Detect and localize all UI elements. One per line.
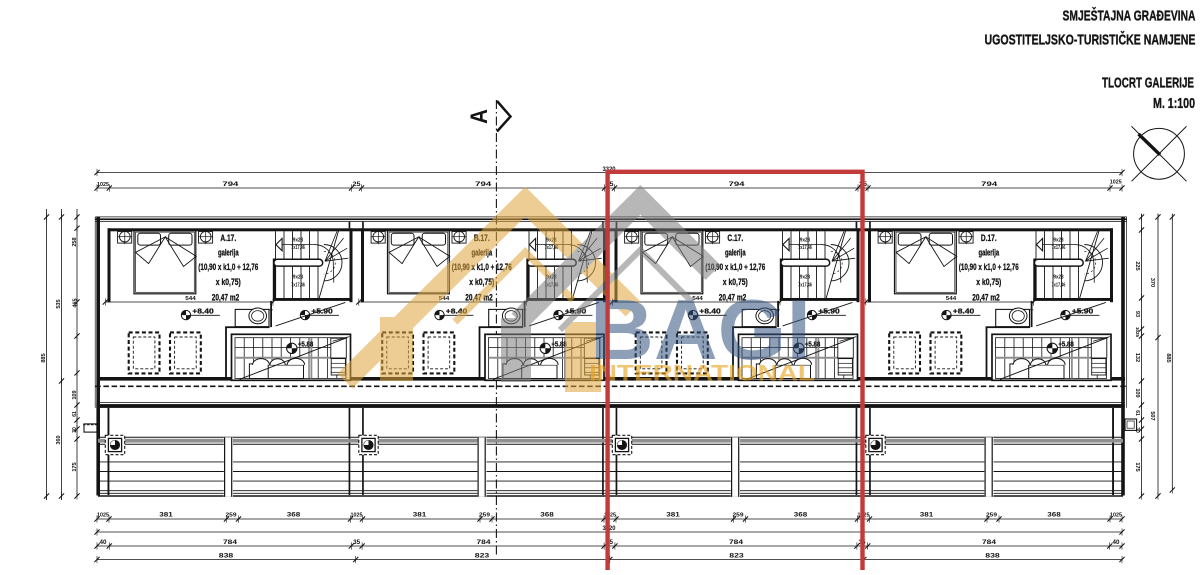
svg-text:1025: 1025 xyxy=(351,512,363,518)
svg-text:1025: 1025 xyxy=(1135,327,1140,338)
svg-text:544: 544 xyxy=(946,296,957,302)
svg-text:885: 885 xyxy=(1165,353,1171,362)
svg-text:9x28: 9x28 xyxy=(1053,275,1063,281)
svg-text:823: 823 xyxy=(729,552,744,559)
svg-text:823: 823 xyxy=(475,552,490,559)
svg-text:93: 93 xyxy=(1134,311,1140,317)
svg-text:x k0,75): x k0,75) xyxy=(976,277,1001,287)
svg-text:+5.88: +5.88 xyxy=(551,342,567,349)
svg-text:INTERNATIONAL: INTERNATIONAL xyxy=(589,361,815,386)
svg-text:784: 784 xyxy=(223,539,238,546)
svg-text:381: 381 xyxy=(920,511,934,518)
svg-text:61: 61 xyxy=(1134,410,1140,416)
svg-text:368: 368 xyxy=(287,511,301,518)
svg-text:784: 784 xyxy=(729,539,744,546)
svg-text:A: A xyxy=(466,109,493,124)
svg-text:35: 35 xyxy=(353,539,361,546)
svg-text:UGOSTITELJSKO-TURISTIČKE NAMJE: UGOSTITELJSKO-TURISTIČKE NAMJENE xyxy=(985,31,1196,49)
svg-text:30: 30 xyxy=(1134,427,1140,433)
svg-text:7x17,46: 7x17,46 xyxy=(798,245,812,251)
svg-text:784: 784 xyxy=(477,539,492,546)
svg-text:370: 370 xyxy=(1149,278,1155,287)
svg-text:535: 535 xyxy=(56,299,62,308)
svg-text:(10,90 x k1,0 + 12,76: (10,90 x k1,0 + 12,76 xyxy=(959,262,1019,272)
svg-text:9x28: 9x28 xyxy=(800,275,810,281)
svg-text:+8.40: +8.40 xyxy=(192,306,214,315)
svg-text:+8.40: +8.40 xyxy=(953,306,975,315)
svg-text:25: 25 xyxy=(353,181,362,188)
svg-text:259: 259 xyxy=(733,512,745,518)
svg-text:109: 109 xyxy=(1134,388,1140,397)
svg-text:784: 784 xyxy=(982,539,997,546)
svg-text:794: 794 xyxy=(729,181,746,188)
svg-text:7x17,46: 7x17,46 xyxy=(291,245,305,251)
svg-text:175: 175 xyxy=(1134,462,1140,471)
svg-text:(10,90 x k1,0 + 12,76: (10,90 x k1,0 + 12,76 xyxy=(198,262,258,272)
svg-text:507: 507 xyxy=(1149,411,1155,420)
svg-text:381: 381 xyxy=(666,511,680,518)
svg-text:TLOCRT GALERIJE: TLOCRT GALERIJE xyxy=(1102,75,1194,91)
svg-text:x k0,75): x k0,75) xyxy=(216,277,241,287)
svg-text:7x17,46: 7x17,46 xyxy=(1052,245,1066,251)
svg-text:368: 368 xyxy=(540,511,554,518)
svg-text:885: 885 xyxy=(41,353,47,362)
svg-text:30: 30 xyxy=(72,427,78,433)
svg-text:C.17.: C.17. xyxy=(727,233,743,243)
svg-text:galerija: galerija xyxy=(218,247,239,257)
svg-text:225: 225 xyxy=(1134,261,1140,270)
svg-text:M. 1:100: M. 1:100 xyxy=(1153,96,1195,112)
svg-text:9x28: 9x28 xyxy=(800,237,810,243)
svg-text:+5.88: +5.88 xyxy=(298,342,314,349)
svg-text:SMJEŠTAJNA GRAĐEVINA: SMJEŠTAJNA GRAĐEVINA xyxy=(1063,7,1196,25)
svg-text:40: 40 xyxy=(1113,539,1121,546)
svg-text:794: 794 xyxy=(222,181,239,188)
svg-text:258: 258 xyxy=(72,237,78,246)
svg-text:838: 838 xyxy=(985,552,1000,559)
svg-text:132: 132 xyxy=(1134,353,1140,362)
svg-text:galerija: galerija xyxy=(725,247,746,257)
svg-text:259: 259 xyxy=(479,512,491,518)
svg-text:381: 381 xyxy=(413,511,427,518)
svg-text:+5.88: +5.88 xyxy=(1058,342,1074,349)
svg-text:381: 381 xyxy=(159,511,173,518)
svg-text:7x17,46: 7x17,46 xyxy=(1052,282,1066,288)
svg-text:1025: 1025 xyxy=(97,182,110,188)
svg-text:794: 794 xyxy=(981,181,998,188)
svg-text:9x28: 9x28 xyxy=(293,275,303,281)
svg-text:61: 61 xyxy=(72,411,78,417)
svg-text:9x28: 9x28 xyxy=(293,237,303,243)
svg-text:7x17,46: 7x17,46 xyxy=(291,282,305,288)
svg-text:20,47 m2: 20,47 m2 xyxy=(972,292,1000,302)
svg-text:544: 544 xyxy=(185,296,196,302)
svg-text:40: 40 xyxy=(100,539,108,546)
svg-text:259: 259 xyxy=(986,512,998,518)
svg-text:galerija: galerija xyxy=(979,247,1000,257)
svg-text:175: 175 xyxy=(72,462,78,471)
svg-text:360: 360 xyxy=(56,435,62,444)
svg-text:A.17.: A.17. xyxy=(220,233,236,243)
svg-text:838: 838 xyxy=(219,552,234,559)
svg-text:465: 465 xyxy=(73,298,79,307)
svg-text:20,47 m2: 20,47 m2 xyxy=(212,292,240,302)
svg-text:368: 368 xyxy=(1047,511,1061,518)
svg-text:1025: 1025 xyxy=(1110,180,1123,186)
svg-text:9x28: 9x28 xyxy=(1053,237,1063,243)
svg-text:D.17.: D.17. xyxy=(981,233,997,243)
svg-text:1025: 1025 xyxy=(97,512,109,518)
svg-text:259: 259 xyxy=(226,512,238,518)
svg-text:368: 368 xyxy=(794,511,808,518)
svg-text:794: 794 xyxy=(475,181,492,188)
svg-text:109: 109 xyxy=(72,390,78,399)
svg-text:1025: 1025 xyxy=(1110,512,1122,518)
